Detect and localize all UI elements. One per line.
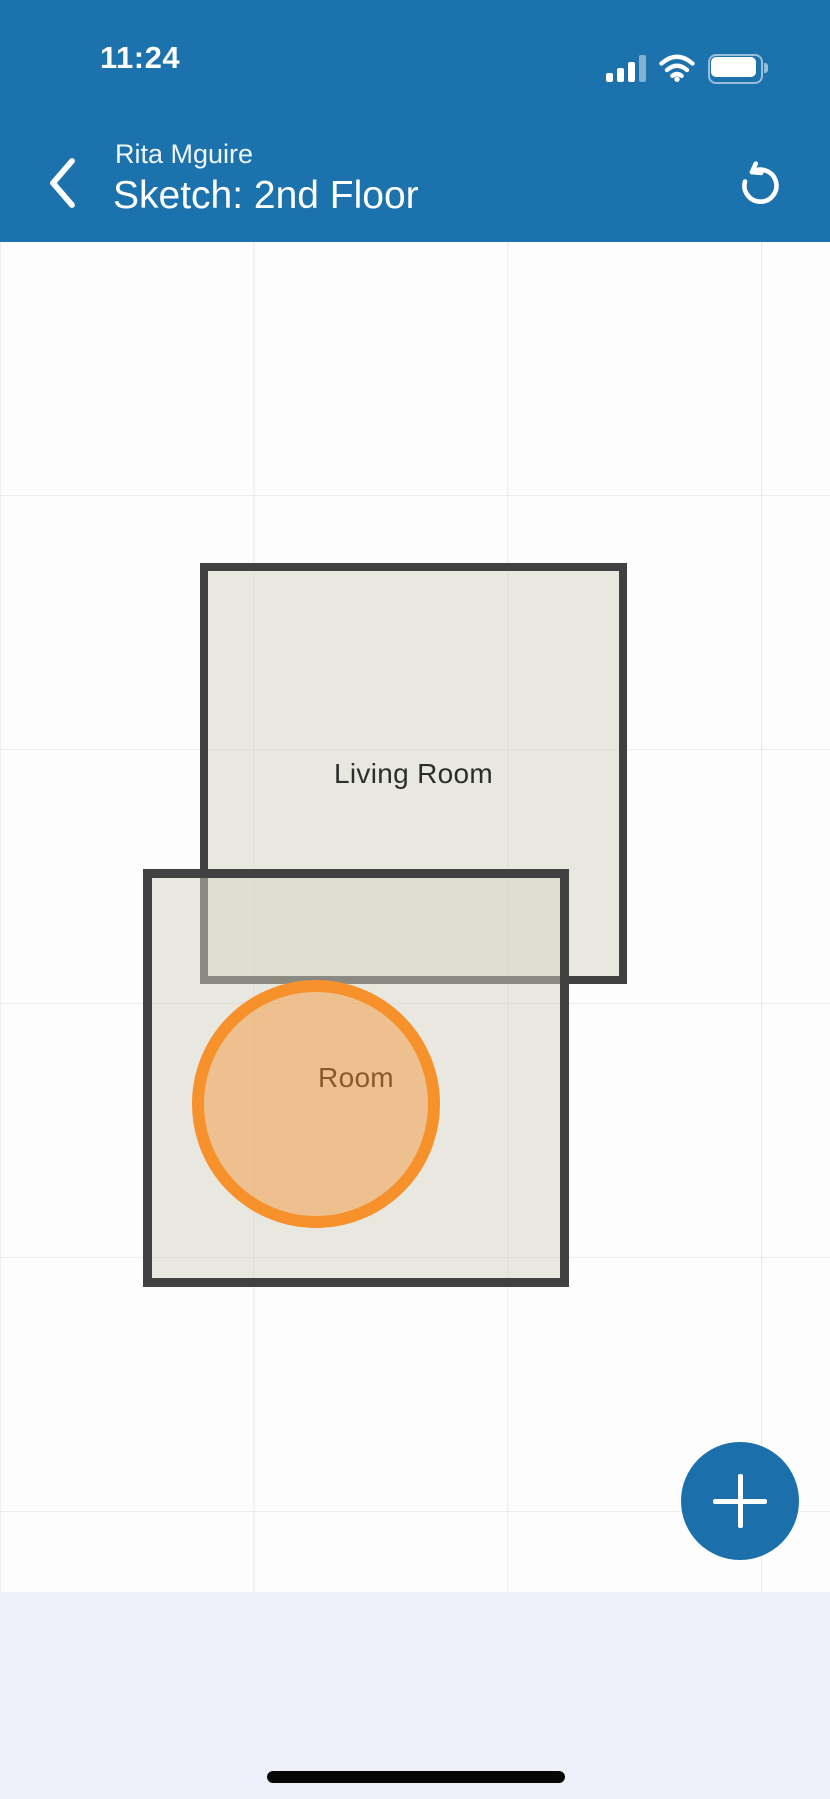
chevron-left-icon (46, 156, 78, 210)
header: 11:24 Rita Mguire Sketch: 2nd Fl (0, 0, 830, 242)
header-subtitle: Rita Mguire (115, 139, 253, 170)
page-title: Sketch: 2nd Floor (113, 172, 419, 219)
footer-bar (0, 1592, 830, 1799)
plus-icon (713, 1474, 767, 1528)
back-button[interactable] (38, 150, 86, 216)
wifi-icon (659, 53, 695, 82)
home-indicator[interactable] (267, 1771, 565, 1783)
add-shape-button[interactable] (681, 1442, 799, 1560)
sketch-canvas[interactable]: Living Room Room (0, 242, 830, 1592)
battery-icon (708, 54, 768, 82)
rotate-counterclockwise-icon (735, 159, 785, 209)
cellular-signal-icon (606, 54, 646, 82)
undo-button[interactable] (730, 154, 790, 214)
app-screen: 11:24 Rita Mguire Sketch: 2nd Fl (0, 0, 830, 1799)
circle-shape[interactable] (192, 980, 440, 1228)
status-icons (606, 50, 768, 82)
status-time: 11:24 (100, 40, 220, 76)
